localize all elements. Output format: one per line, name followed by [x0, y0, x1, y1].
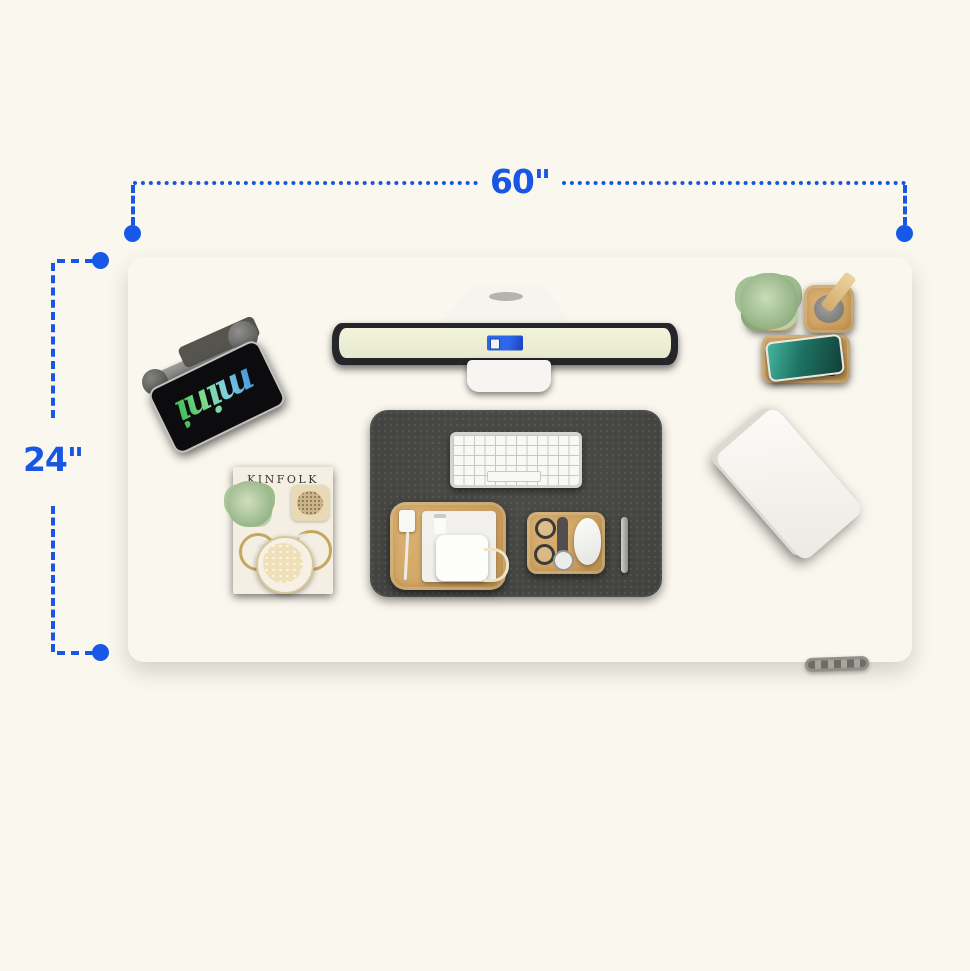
coffee-cup: [256, 536, 314, 594]
mouse: [574, 518, 601, 565]
monitor-stand-base: [467, 360, 551, 392]
usb-adapter: [399, 510, 415, 532]
keyboard: [450, 432, 582, 488]
dimension-line: [57, 259, 93, 263]
dimension-line: [133, 181, 478, 185]
usb-plug: [434, 514, 446, 534]
magazine-plant: [227, 481, 273, 527]
monitor-cable-hole: [489, 292, 523, 301]
keyboard-keys: [453, 435, 579, 485]
power-adapter: [436, 535, 488, 581]
depth-dimension-label: 24": [14, 440, 92, 479]
desk-height-controller: [805, 656, 869, 672]
dimension-line: [57, 651, 93, 655]
monitor: [332, 323, 678, 365]
product-diagram: 60" 24" mini: [0, 0, 970, 971]
wireless-charger: [762, 335, 850, 383]
accessory-tray: [527, 512, 605, 574]
dimension-line: [131, 185, 135, 225]
monitor-screen-logo: [487, 336, 523, 351]
pen-holder: [804, 285, 854, 333]
keyboard-spacebar: [487, 471, 541, 482]
succulent-planter: [746, 281, 796, 331]
laptop: [714, 406, 865, 563]
pen: [621, 517, 628, 573]
dimension-endpoint-dot: [92, 644, 109, 661]
charger-cable: [484, 548, 509, 582]
watch-face: [553, 550, 574, 571]
monitor-screen-panel: [339, 328, 671, 358]
kinfolk-magazine: KINFOLK: [233, 467, 333, 594]
dimension-line: [903, 185, 907, 225]
latte-foam: [263, 543, 303, 583]
eyeglasses-lens: [535, 518, 556, 539]
dimension-endpoint-dot: [92, 252, 109, 269]
width-dimension-label: 60": [476, 162, 564, 201]
controller-buttons: [808, 659, 866, 669]
adapter-cable: [404, 532, 410, 580]
eyeglasses-lens: [534, 544, 555, 565]
dimension-endpoint-dot: [896, 225, 913, 242]
succulent-plant: [740, 273, 798, 329]
dimension-line: [51, 506, 55, 652]
monitor-screen-logo-detail: [490, 339, 500, 350]
cable-tray: [390, 502, 506, 590]
dimension-line: [51, 263, 55, 418]
desk-surface: mini: [128, 257, 912, 662]
ipad-mini: mini: [146, 338, 287, 456]
monitor-stand-neck: [440, 285, 572, 325]
dimension-line: [562, 181, 906, 185]
seed-dish-contents: [297, 491, 323, 515]
dimension-endpoint-dot: [124, 225, 141, 242]
seed-dish: [291, 485, 329, 521]
